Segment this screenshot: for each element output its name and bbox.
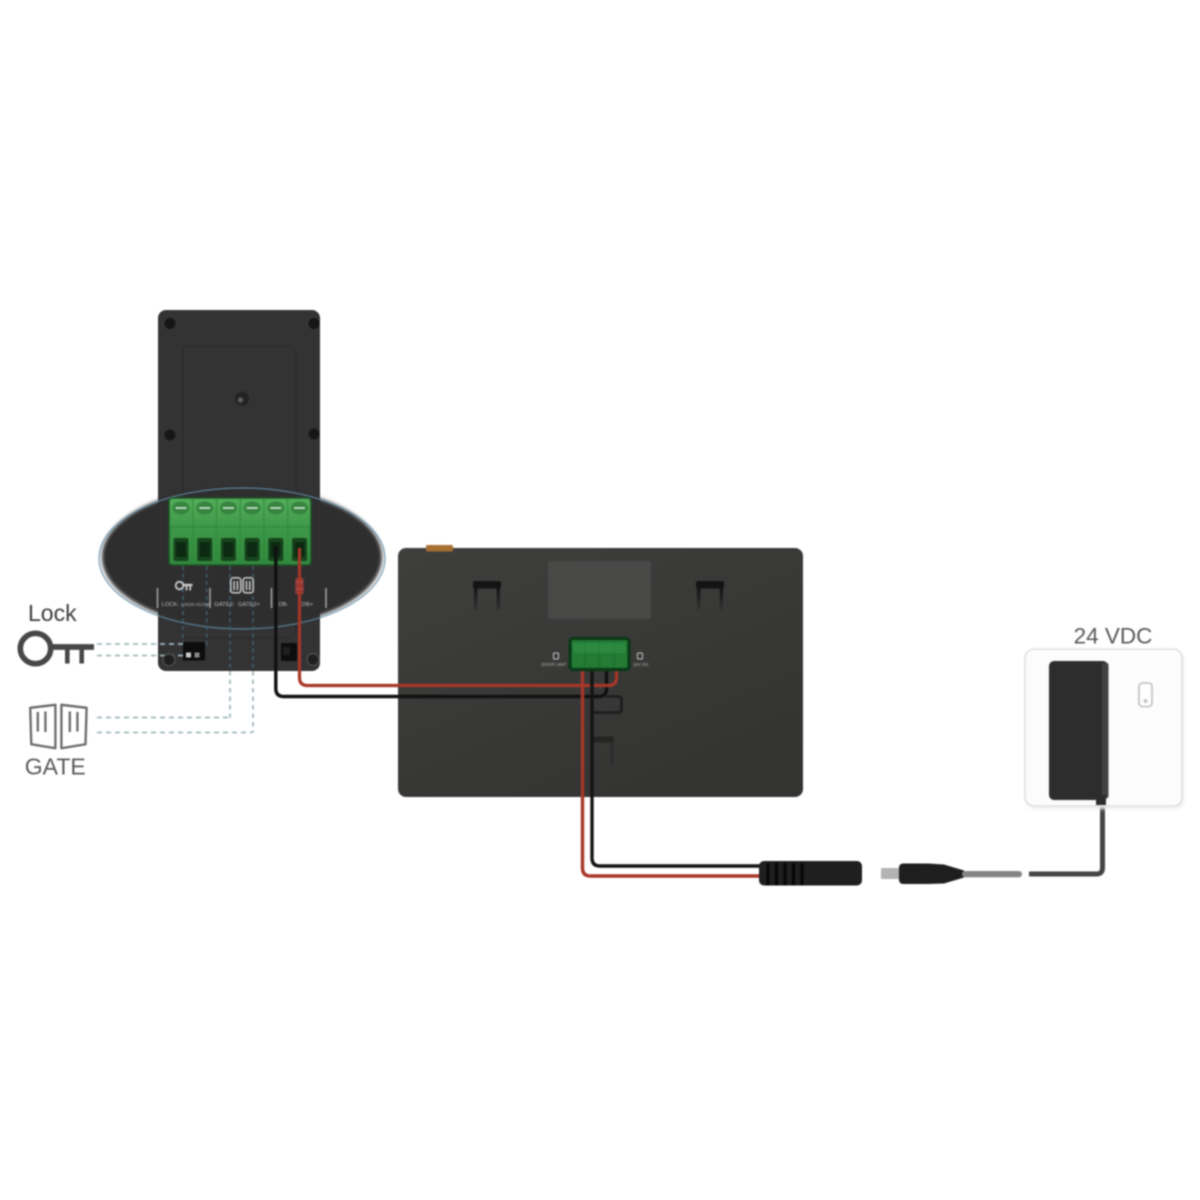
svg-text:LOCK-: LOCK- bbox=[162, 602, 180, 608]
svg-text:DB-: DB- bbox=[279, 602, 289, 608]
svg-text:LOCK+/COM: LOCK+/COM bbox=[181, 602, 209, 608]
svg-text:24 VDC: 24 VDC bbox=[1074, 624, 1153, 649]
svg-text:DB+: DB+ bbox=[302, 602, 314, 608]
svg-text:GATE: GATE bbox=[25, 754, 86, 780]
svg-text:GATE2+: GATE2+ bbox=[238, 602, 261, 608]
svg-text:GATE2-: GATE2- bbox=[214, 602, 235, 608]
svg-text:Lock: Lock bbox=[28, 600, 77, 626]
svg-text:DOOR UNIT: DOOR UNIT bbox=[541, 662, 567, 667]
svg-text:24V DC: 24V DC bbox=[633, 662, 650, 667]
